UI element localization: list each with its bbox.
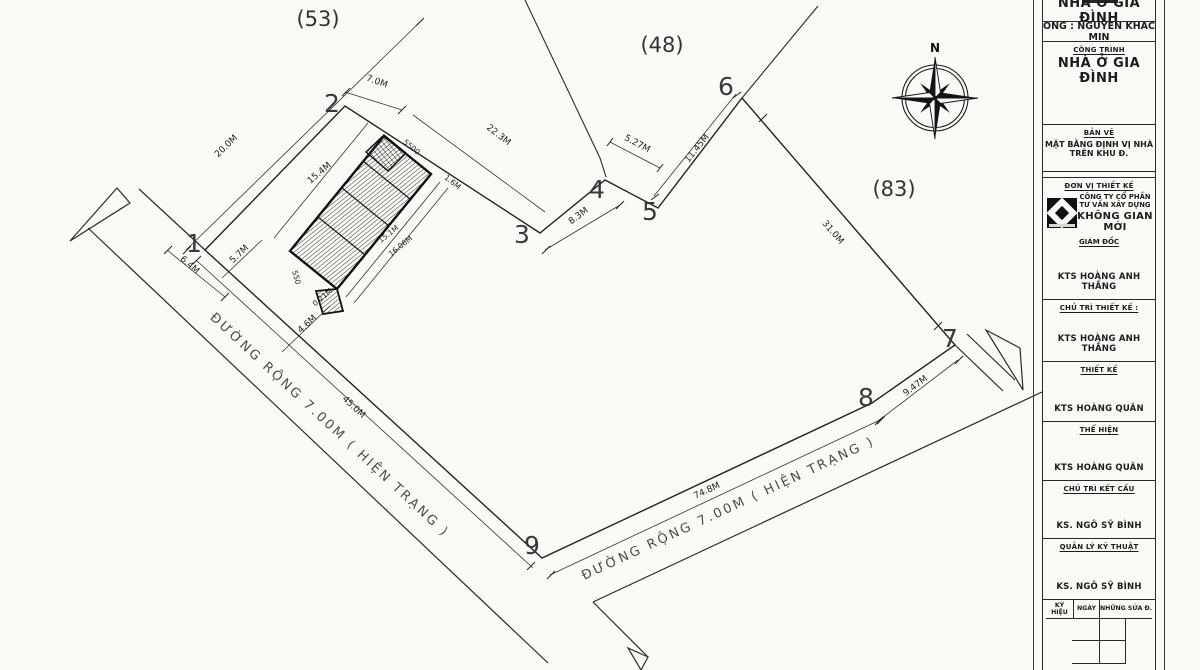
parcel-48-label: (48) [640,33,683,57]
project-section: CÔNG TRÌNH NHÀ Ở GIA ĐÌNH [1043,42,1155,125]
dim-4-6m: 4.6M [296,313,319,335]
role-structure-lead-name: KS. NGÔ SỸ BÌNH [1056,521,1141,538]
role-technical-manager-name: KS. NGÔ SỸ BÌNH [1056,582,1141,599]
revision-row-empty [1072,619,1126,642]
owner-name-section: ÔNG : NGUYỄN KHẮC MIN [1043,22,1155,42]
role-drafter-section: THỂ HIỆN KTS HOÀNG QUÂN [1043,422,1155,481]
drawing-sheet: 20.0M 7.0M 22.3M 5500 1.6M 15.4M 15.1M 1… [0,0,1200,670]
dim-9-47m: 9.47M [902,374,930,399]
parcel-53-label: (53) [296,7,339,31]
vertex-5: 5 [642,197,658,226]
drawing-label: BẢN VẼ [1084,129,1114,137]
role-designer-name: KTS HOÀNG QUÂN [1054,404,1144,421]
role-designer-section: THIẾT KẾ KTS HOÀNG QUÂN [1043,362,1155,422]
dimension-labels: 20.0M 7.0M 22.3M 5500 1.6M 15.4M 15.1M 1… [178,74,930,502]
design-unit-row: CÔNG TY CỔ PHẦN TƯ VẤN XÂY DỰNG KHÔNG GI… [1043,190,1155,233]
director-name: KTS HOÀNG ANH THẮNG [1043,272,1155,299]
revision-table-header: KÝ HIỆU NGÀY NHỮNG SỬA Đ. [1046,600,1152,619]
role-design-lead-name: KTS HOÀNG ANH THẮNG [1043,334,1155,361]
dim-45-0m: 45.0M [340,394,367,420]
design-unit-section: ĐƠN VỊ THIẾT KẾ CÔNG TY CỔ PHẦN TƯ VẤN X… [1043,178,1155,300]
role-drafter-label: THỂ HIỆN [1080,426,1119,434]
vertex-3: 3 [514,220,530,249]
revision-col-symbol: KÝ HIỆU [1046,600,1074,618]
revision-row-empty [1072,641,1126,664]
vertex-1: 1 [186,229,202,258]
owner-name: ÔNG : NGUYỄN KHẮC MIN [1043,22,1155,42]
parcel-83-label: (83) [872,177,915,201]
building-footprint [290,135,431,314]
dim-11-45m: 11.45M [683,133,712,165]
project-label: CÔNG TRÌNH [1073,46,1125,54]
west-road-label: ĐƯỜNG RỘNG 7.00M ( HIỆN TRẠNG ) [207,309,453,540]
title-block: NHÀ Ở GIA ĐÌNH ÔNG : NGUYỄN KHẮC MIN CÔN… [1042,0,1156,670]
role-technical-manager-label: QUẢN LÝ KỸ THUẬT [1060,543,1139,551]
revision-table: KÝ HIỆU NGÀY NHỮNG SỬA Đ. [1043,600,1155,664]
vertex-labels: 1 2 3 4 5 6 7 8 9 [186,72,958,560]
drawing-title: MẶT BẰNG ĐỊNH VỊ NHÀ TRÊN KHU Đ. [1043,140,1155,158]
company-logo-icon [1047,198,1077,228]
role-design-lead-label: CHỦ TRÌ THIẾT KẾ : [1060,304,1139,312]
role-structure-lead-label: CHỦ TRÌ KẾT CẤU [1064,485,1135,493]
dim-1-6m: 1.6M [443,173,463,192]
dim-5-27m: 5.27M [622,133,651,155]
project-value: NHÀ Ở GIA ĐÌNH [1043,56,1155,86]
company-line-2: TƯ VẤN XÂY DỰNG [1080,201,1151,209]
revision-col-changes: NHỮNG SỬA Đ. [1100,600,1152,618]
dim-74-8m: 74.8M [692,481,721,502]
dimension-lines [167,22,958,575]
parcel-boundary [205,98,955,558]
vertex-9: 9 [524,531,540,560]
frame-line-left [1033,0,1034,670]
owner-title: NHÀ Ở GIA ĐÌNH [1043,0,1155,22]
company-name: CÔNG TY CỔ PHẦN TƯ VẤN XÂY DỰNG KHÔNG GI… [1077,193,1153,233]
vertex-4: 4 [589,175,605,204]
director-label: GIÁM ĐỐC [1079,238,1119,246]
tick-marks [164,18,963,579]
role-technical-manager-section: QUẢN LÝ KỸ THUẬT KS. NGÔ SỸ BÌNH [1043,539,1155,600]
compass-north-label: N [930,41,940,55]
drawing-section: BẢN VẼ MẶT BẰNG ĐỊNH VỊ NHÀ TRÊN KHU Đ. [1043,125,1155,172]
dim-20-0m: 20.0M [213,133,240,160]
compass-rose: N [892,41,978,139]
role-design-lead-section: CHỦ TRÌ THIẾT KẾ : KTS HOÀNG ANH THẮNG [1043,300,1155,362]
vertex-7: 7 [942,324,958,353]
site-plan-svg: 20.0M 7.0M 22.3M 5500 1.6M 15.4M 15.1M 1… [0,0,1200,670]
dim-22-3m: 22.3M [484,123,512,148]
revision-col-date: NGÀY [1074,600,1100,618]
dim-7-0m: 7.0M [365,74,389,91]
dim-5-7m: 5.7M [228,243,251,265]
role-structure-lead-section: CHỦ TRÌ KẾT CẤU KS. NGÔ SỸ BÌNH [1043,481,1155,539]
owner-section: NHÀ Ở GIA ĐÌNH [1043,0,1155,22]
vertex-2: 2 [324,89,340,118]
south-road-label: ĐƯỜNG RỘNG 7.00M ( HIỆN TRẠNG ) [579,433,877,583]
design-unit-label: ĐƠN VỊ THIẾT KẾ [1064,182,1133,190]
road-labels: ĐƯỜNG RỘNG 7.00M ( HIỆN TRẠNG ) ĐƯỜNG RỘ… [207,309,878,583]
vertex-8: 8 [858,383,874,412]
parcel-divider-lines [525,0,818,177]
vertex-6: 6 [718,72,734,101]
dim-31-0m: 31.0M [820,219,846,247]
company-line-3: KHÔNG GIAN MỚI [1077,211,1153,233]
role-designer-label: THIẾT KẾ [1080,366,1117,374]
role-drafter-name: KTS HOÀNG QUÂN [1054,463,1144,480]
dim-550: 550 [290,269,302,285]
frame-line-right [1164,0,1165,670]
